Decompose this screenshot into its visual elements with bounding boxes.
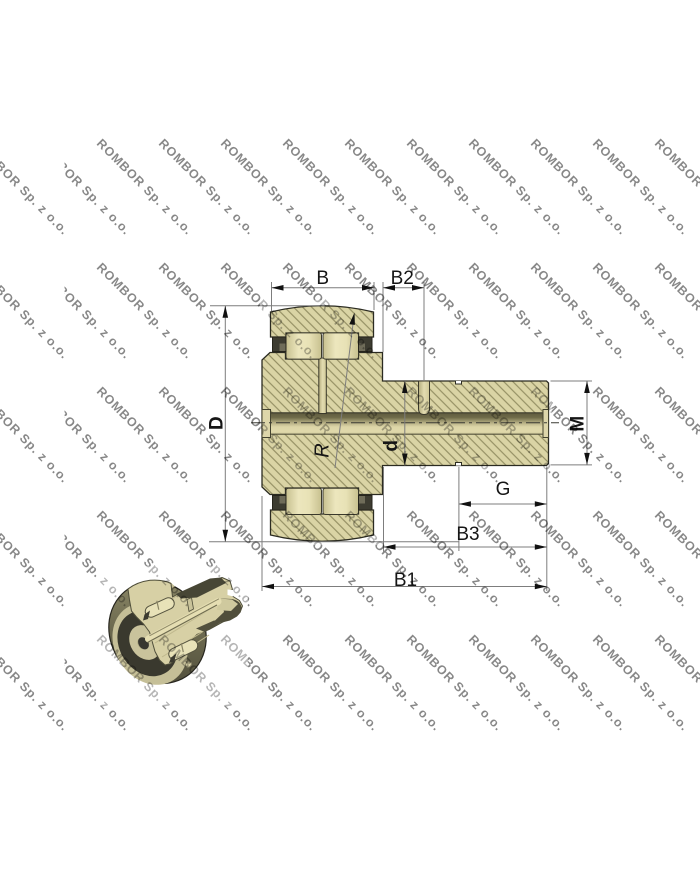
svg-text:R: R	[312, 443, 334, 457]
svg-text:B: B	[316, 268, 329, 289]
